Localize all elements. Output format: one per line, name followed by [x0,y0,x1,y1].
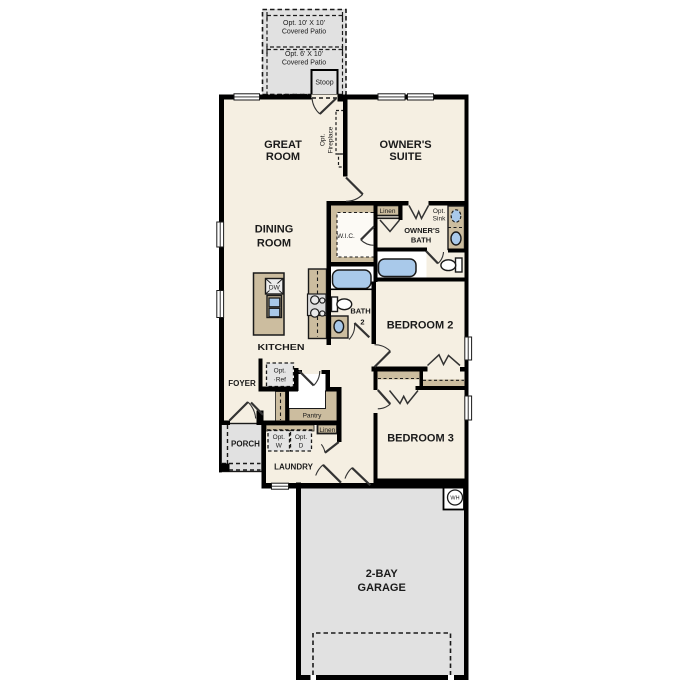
svg-text:Opt. 6' X 10': Opt. 6' X 10' [285,51,323,58]
svg-text:BATH: BATH [350,306,370,315]
svg-text:SUITE: SUITE [389,151,421,163]
svg-text:W: W [276,443,283,450]
svg-text:WH: WH [450,496,459,502]
svg-text:OWNER'S: OWNER'S [404,226,440,235]
svg-text:2: 2 [360,317,364,326]
svg-text:LAUNDRY: LAUNDRY [274,462,313,471]
svg-text:W.I.C.: W.I.C. [337,233,355,240]
svg-text:D: D [299,443,304,450]
svg-text:Linen: Linen [319,427,335,434]
svg-text:OWNER'S: OWNER'S [380,139,432,151]
svg-text:2-BAY: 2-BAY [366,568,399,580]
svg-text:Linen: Linen [380,208,396,215]
svg-text:KITCHEN: KITCHEN [258,343,305,352]
svg-text:DINING: DINING [255,224,294,236]
svg-text:·Ref: ·Ref [274,377,286,384]
svg-text:GREAT: GREAT [264,139,302,151]
svg-text:Pantry: Pantry [303,412,323,419]
svg-text:BATH: BATH [411,236,431,245]
svg-text:GARAGE: GARAGE [358,582,406,594]
svg-text:ROOM: ROOM [266,151,300,163]
svg-text:Opt.: Opt. [274,367,286,374]
svg-text:Opt.: Opt. [433,208,445,215]
svg-text:PORCH: PORCH [231,439,260,448]
svg-text:Opt. 10' X 10': Opt. 10' X 10' [283,20,325,27]
svg-text:FOYER: FOYER [228,379,256,388]
svg-text:Fireplace: Fireplace [328,126,335,153]
svg-text:Opt.: Opt. [273,434,285,441]
svg-text:ROOM: ROOM [257,237,291,249]
svg-text:Covered Patio: Covered Patio [282,29,326,36]
svg-text:Opt.: Opt. [295,434,307,441]
svg-text:Opt.: Opt. [320,134,327,146]
svg-text:Stoop: Stoop [315,80,333,87]
svg-text:BEDROOM 3: BEDROOM 3 [387,432,454,444]
svg-text:BEDROOM 2: BEDROOM 2 [387,319,454,331]
svg-text:Covered Patio: Covered Patio [282,60,326,67]
svg-text:DW: DW [269,285,281,292]
svg-text:Sink: Sink [433,216,446,223]
